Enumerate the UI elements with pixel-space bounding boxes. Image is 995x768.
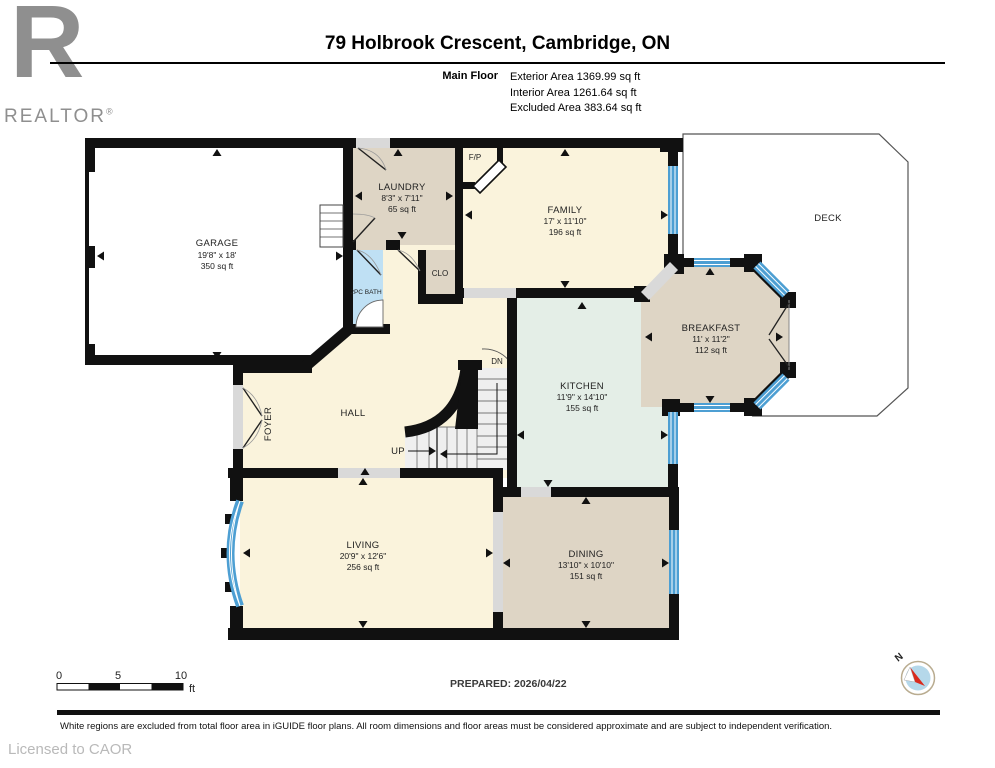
laundry-sqft: 65 sq ft [388,204,417,214]
compass-north-label: N [893,651,905,664]
floorplan-page: R 79 Holbrook Crescent, Cambridge, ON RE… [0,0,995,768]
license-text: Licensed to CAOR [8,741,132,758]
stairs-down-label: DN [491,357,503,366]
family-label: FAMILY [548,205,583,216]
breakfast-sqft: 112 sq ft [695,345,728,355]
dining-window [669,530,679,594]
prepared-date: PREPARED: 2026/04/22 [450,678,567,690]
family-window [668,166,678,234]
living-bow-window [230,501,241,606]
foyer-label: FOYER [263,407,274,441]
closet-label: CLO [432,269,448,278]
floor-plan: GARAGE 19'8" x 18' 350 sq ft LAUNDRY 8'3… [0,0,995,768]
breakfast-top-window [694,258,730,267]
garage-dims: 19'8" x 18' [198,250,237,260]
stairs-up-label: UP [391,446,405,457]
garage-entry-steps [320,205,343,247]
kitchen-dims: 11'9" x 14'10" [557,392,608,402]
scale-tick-0: 0 [56,670,62,682]
scale-tick-5: 5 [115,670,121,682]
laundry-label: LAUNDRY [378,182,426,193]
garage-label: GARAGE [196,238,238,249]
disclaimer-text: White regions are excluded from total fl… [60,721,832,732]
scale-unit: ft [189,683,195,695]
family-dims: 17' x 11'10" [544,216,587,226]
footer-divider [57,710,940,715]
living-dims: 20'9" x 12'6" [340,551,387,561]
living-sqft: 256 sq ft [347,562,380,572]
kitchen-label: KITCHEN [560,381,604,392]
scale-bar: 0 5 10 ft [56,670,195,695]
kitchen-window [668,412,678,464]
compass-icon: N [893,651,934,694]
breakfast-bottom-window [694,403,730,412]
family-sqft: 196 sq ft [549,227,582,237]
scale-tick-10: 10 [175,670,187,682]
breakfast-dims: 11' x 11'2" [692,334,730,344]
garage-sqft: 350 sq ft [201,261,234,271]
living-label: LIVING [347,540,380,551]
dining-label: DINING [568,549,603,560]
kitchen-sqft: 155 sq ft [566,403,599,413]
fireplace-label: F/P [469,153,481,162]
dining-sqft: 151 sq ft [570,571,603,581]
breakfast-label: BREAKFAST [682,323,741,334]
deck-label: DECK [814,213,842,224]
hall-label: HALL [341,408,366,419]
bath-label: 2PC BATH [350,289,382,296]
dining-dims: 13'10" x 10'10" [558,560,614,570]
laundry-dims: 8'3" x 7'11" [381,193,422,203]
